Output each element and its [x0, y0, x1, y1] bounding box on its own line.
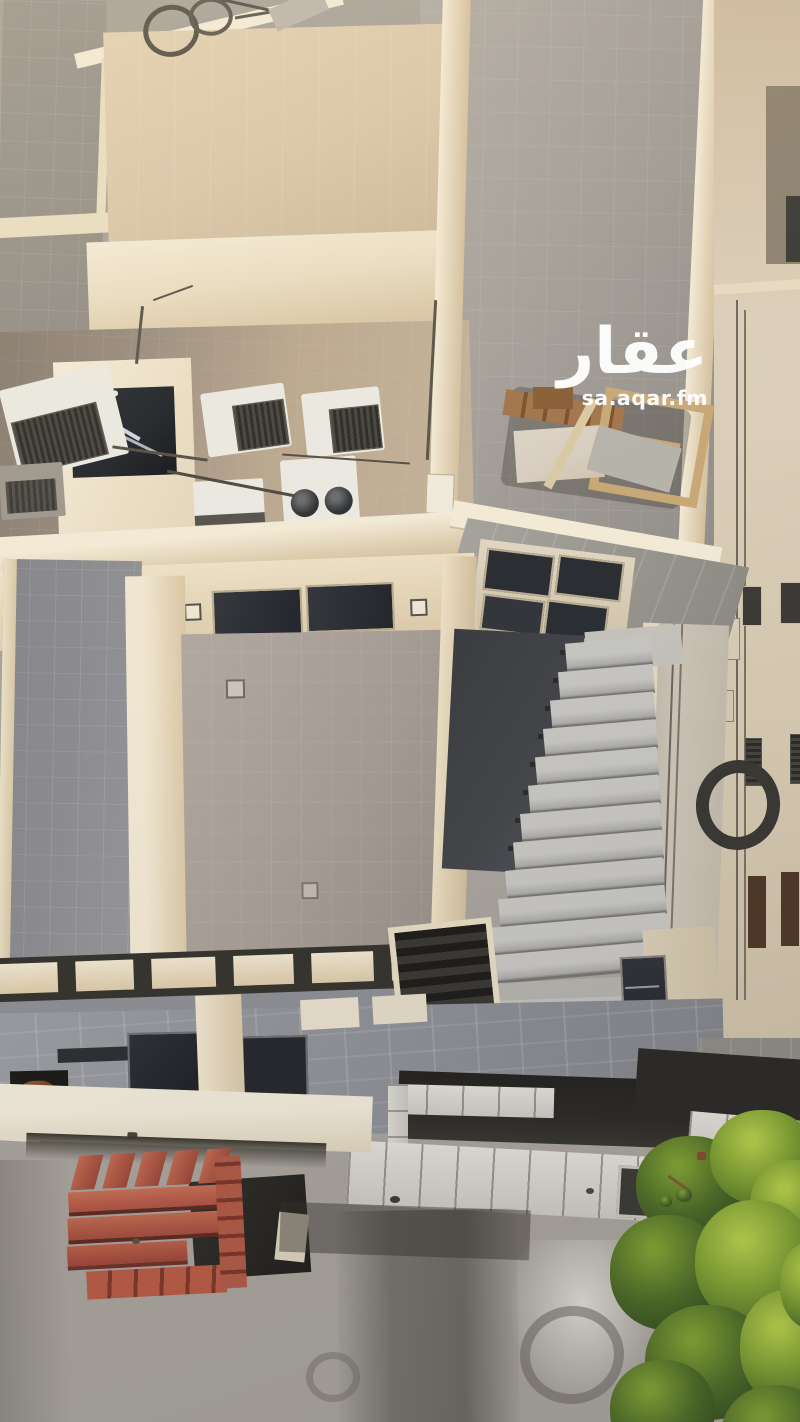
pebble: [586, 1188, 594, 1194]
formwork-side-column: [214, 1155, 247, 1288]
ground-left-shading: [0, 1160, 70, 1422]
ac-grille: [232, 399, 290, 452]
window-pane: [482, 548, 555, 598]
roof-drain: [226, 679, 245, 698]
rail-post: [538, 734, 543, 739]
ac-unit-fans: [280, 455, 360, 526]
ac-unit-shadowed: [0, 462, 66, 520]
watermark: عقار sa.aqar.fm: [548, 322, 708, 410]
rail-post: [523, 790, 528, 795]
neighbor-building: [714, 0, 800, 1046]
stain-ring-small: [306, 1352, 360, 1402]
drain-pipe: [744, 310, 746, 1000]
crenel-block: [311, 951, 374, 983]
tree: [600, 1120, 800, 1422]
window-pane: [554, 555, 624, 603]
twig-leaves: [676, 1188, 692, 1202]
courtyard-edge-wall: [0, 559, 17, 1011]
formwork-fin: [102, 1153, 135, 1189]
crenel-block: [300, 997, 360, 1030]
ac-unit: [193, 478, 265, 526]
vent-square: [410, 599, 428, 617]
aerial-photo: عقار sa.aqar.fm: [0, 0, 800, 1422]
fan-circle: [290, 488, 320, 518]
fan-circle: [324, 486, 354, 516]
rail-post: [560, 650, 565, 655]
crenel-block: [75, 959, 134, 991]
red-debris: [697, 1152, 706, 1160]
panel-shelf: [625, 985, 659, 989]
window-dark: [212, 587, 304, 638]
red-formwork-stack: [62, 1147, 248, 1312]
neighbor-window-brown: [748, 876, 766, 948]
rail-post: [553, 678, 558, 683]
roof-terrace-tan: [103, 23, 457, 250]
twig-leaves: [660, 1196, 672, 1207]
rail-post: [545, 706, 550, 711]
ac-unit: [200, 382, 292, 457]
crenel-block: [151, 957, 216, 989]
gray-sheet: [268, 0, 329, 32]
formwork-slat: [67, 1210, 226, 1244]
formwork-slat: [67, 1240, 188, 1270]
formwork-fin: [166, 1150, 199, 1186]
neighbor-window: [780, 582, 800, 624]
formwork-slats-lower: [86, 1264, 227, 1299]
ac-unit: [301, 386, 385, 458]
rail-post: [530, 762, 535, 767]
ac-grille: [329, 404, 383, 453]
crenel-block: [0, 962, 58, 994]
courtyard-left: [0, 559, 142, 1013]
crenel-block: [233, 954, 294, 986]
aqar-logo-text: عقار: [548, 322, 708, 383]
rail-post: [515, 818, 520, 823]
aqar-site-url: sa.aqar.fm: [548, 386, 708, 410]
wall-base-shadow: [279, 1202, 531, 1261]
crenel-block: [372, 994, 427, 1025]
cable-coil: [188, 0, 233, 36]
neighbor-ledge: [714, 279, 800, 295]
formwork-fin: [134, 1151, 167, 1187]
pebble: [132, 1238, 140, 1244]
ac-grille: [5, 478, 57, 513]
rail-post: [508, 846, 513, 851]
roof-drain: [301, 882, 318, 899]
neighbor-window: [786, 196, 800, 262]
vent-square: [184, 603, 202, 621]
formwork-fin: [70, 1155, 103, 1191]
window-dark: [305, 582, 395, 633]
vent-grille: [790, 734, 800, 784]
pebble: [390, 1196, 400, 1203]
neighbor-window: [742, 586, 762, 626]
neighbor-window-brown: [781, 872, 799, 946]
small-box: [425, 474, 454, 515]
wall-coping-upper: [390, 1084, 555, 1118]
